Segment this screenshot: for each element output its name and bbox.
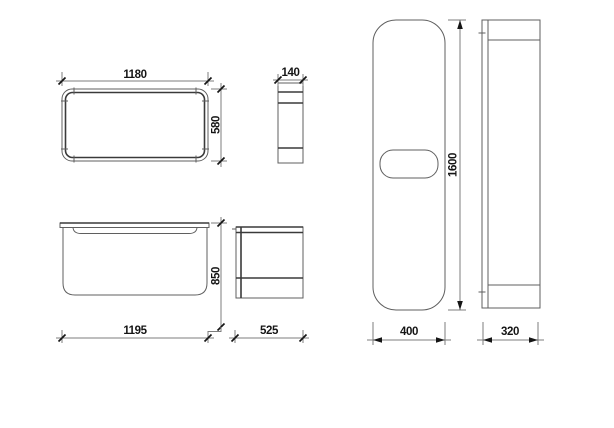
front-body-outline xyxy=(63,228,207,296)
tall-panel-side-view: 320 xyxy=(477,20,544,345)
plan-view: 1180 580 xyxy=(56,69,227,167)
side-width-dimension: 525 xyxy=(229,325,309,343)
dimension-arrow-right xyxy=(436,337,445,343)
plan-width-label: 1180 xyxy=(123,69,146,81)
rim-profile-outline xyxy=(278,83,303,163)
front-height-dimension: 850 xyxy=(208,217,227,338)
panel-width-label: 400 xyxy=(400,326,418,338)
dimension-arrow-right xyxy=(529,337,538,343)
panel-side-width-dimension: 320 xyxy=(477,322,544,345)
panel-height-dimension: 1600 xyxy=(448,20,467,310)
tall-panel-front-view: 1600 400 xyxy=(367,20,466,345)
panel-side-outline xyxy=(482,20,540,308)
panel-height-label: 1600 xyxy=(448,153,460,177)
front-width-dimension: 1195 xyxy=(56,325,214,343)
dimension-arrow-up xyxy=(457,20,463,29)
panel-side-width-label: 320 xyxy=(501,326,519,338)
dimension-arrow-left xyxy=(483,337,492,343)
side-width-label: 525 xyxy=(260,325,279,337)
front-height-label: 850 xyxy=(211,267,223,285)
dimension-arrow-left xyxy=(373,337,382,343)
plan-width-dimension: 1180 xyxy=(56,69,214,86)
rim-profile-width-label: 140 xyxy=(282,67,300,79)
panel-front-outline xyxy=(373,20,445,310)
furniture-dimension-drawing: 1180 580 140 xyxy=(0,0,614,428)
plan-inner-rim-outline xyxy=(66,93,205,158)
rim-profile-view: 140 xyxy=(273,67,308,163)
technical-drawing-canvas: 1180 580 140 xyxy=(0,0,614,428)
plan-height-label: 580 xyxy=(211,116,223,134)
front-view: 850 1195 xyxy=(56,217,227,343)
plan-height-dimension: 580 xyxy=(211,83,228,167)
front-inner-lip xyxy=(73,228,197,234)
front-width-label: 1195 xyxy=(123,325,147,337)
panel-handle-recess xyxy=(380,150,438,178)
panel-width-dimension: 400 xyxy=(367,322,451,345)
side-outline xyxy=(236,227,303,298)
side-view: 525 xyxy=(229,227,309,343)
plan-corner-tangent-ticks xyxy=(61,88,209,163)
plan-outer-outline xyxy=(62,89,208,161)
dimension-arrow-down xyxy=(457,301,463,310)
